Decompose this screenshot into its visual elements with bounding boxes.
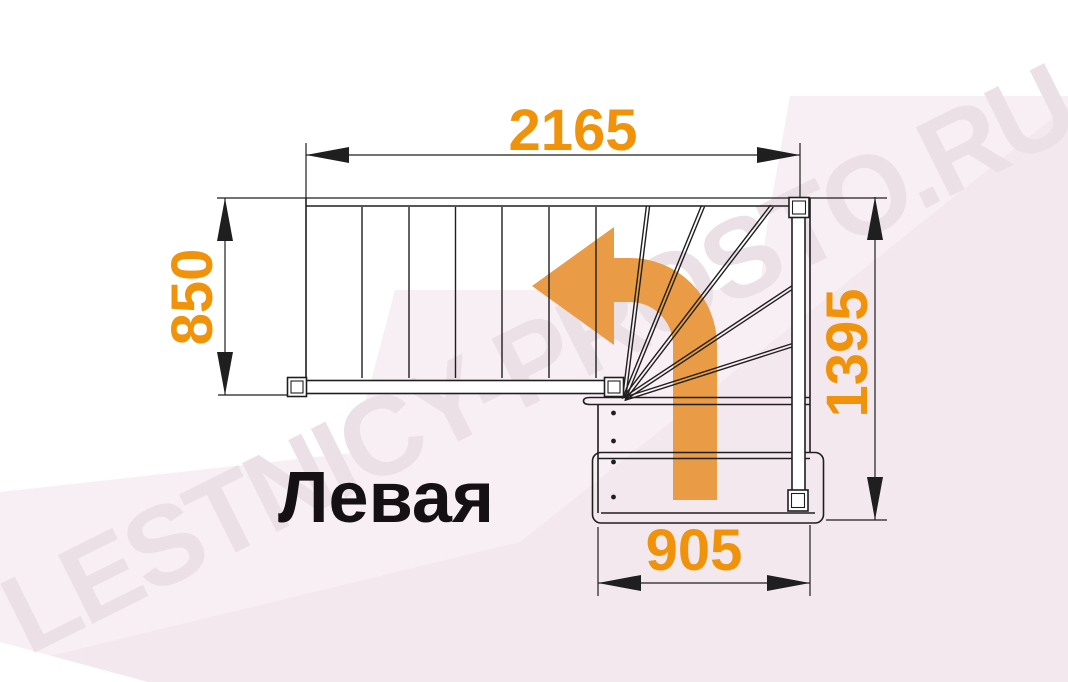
stair-type-label: Левая (278, 458, 494, 538)
newel-post-corner (605, 378, 624, 397)
dimension-flight-width: 850 (160, 249, 225, 346)
dimension-right-height: 1395 (815, 288, 880, 417)
dowel-dot (611, 439, 616, 444)
dowel-dot (611, 460, 616, 465)
newel-post-upper-left (288, 378, 307, 397)
dimension-bottom-width: 905 (646, 518, 743, 583)
dowel-dot (611, 495, 616, 500)
dimension-top-width: 2165 (508, 98, 637, 163)
staircase-plan-diagram: LESTNICY-PROSTO.RU (0, 0, 1068, 682)
dowel-dot (611, 411, 616, 416)
right-handrail (792, 217, 805, 491)
staircase-plan-page: LESTNICY-PROSTO.RU (0, 0, 1068, 682)
upper-handrail (306, 381, 605, 394)
